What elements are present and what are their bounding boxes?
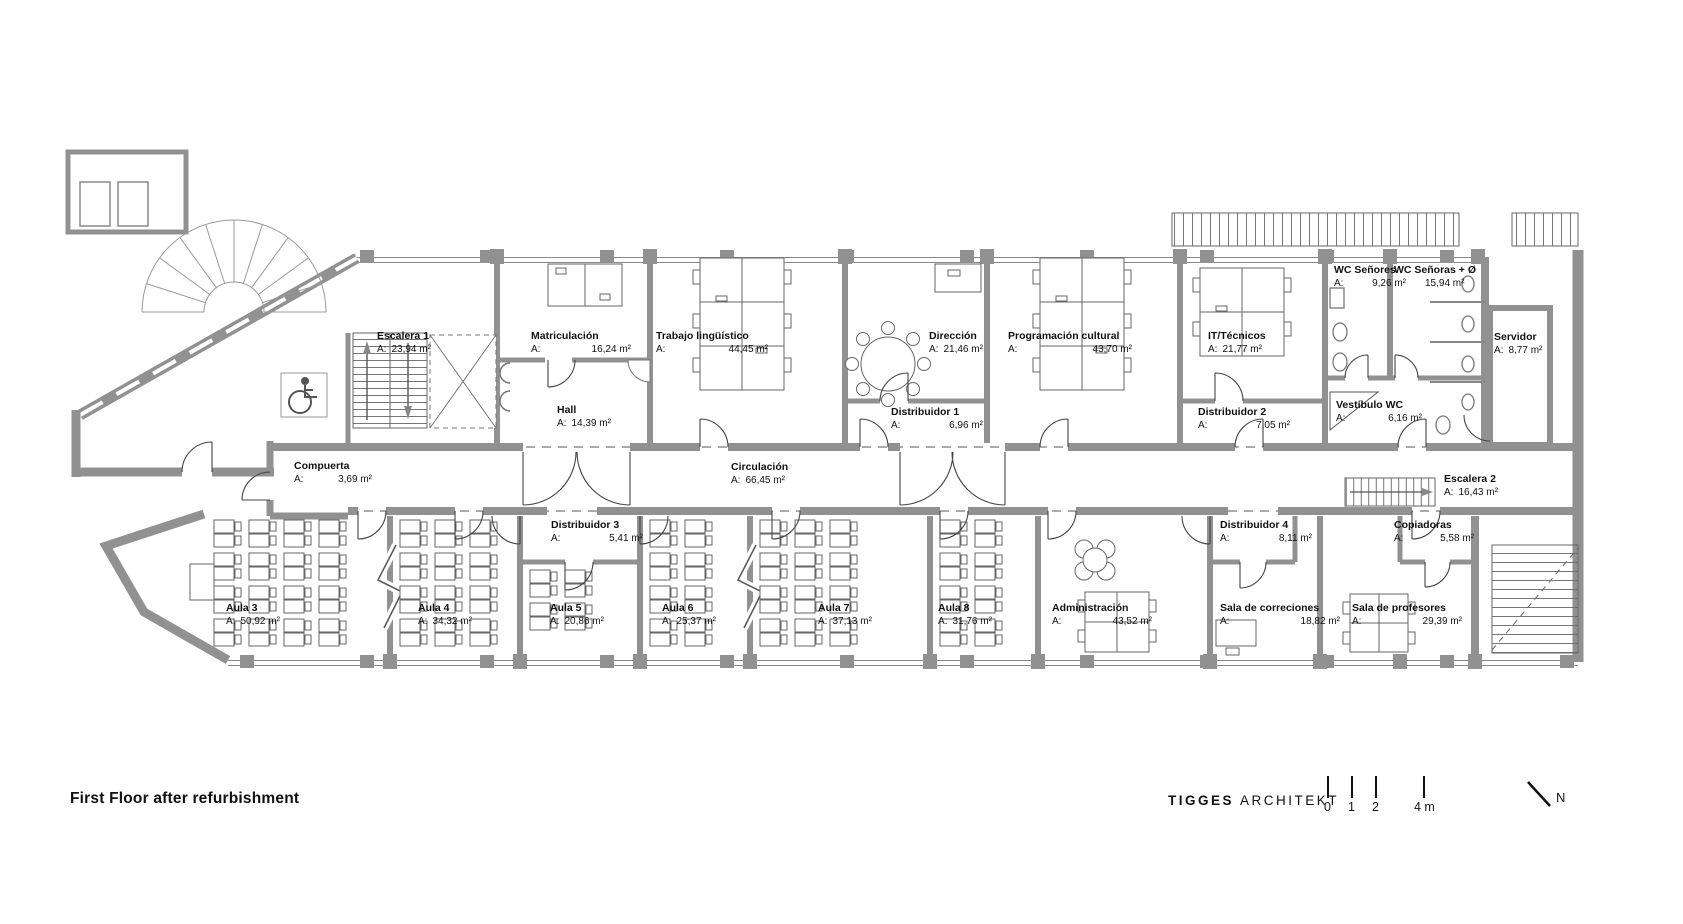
room-label-wc-senoras: WC Señoras + Ø15,94 m² [1394,265,1476,289]
escalera-2-stair [1345,478,1435,506]
scale-label-0: 0 [1324,800,1331,814]
room-label-distribuidor-1: Distribuidor 1A:6,96 m² [891,407,983,431]
dock-hatched-strip [1172,213,1578,246]
room-label-it-tecnicos: IT/TécnicosA:21,77 m² [1208,331,1266,355]
floor-plan-page: Escalera 1A:23,94 m² MatriculaciónA:16,2… [0,0,1683,924]
room-label-distribuidor-2: Distribuidor 2A:7,05 m² [1198,407,1290,431]
room-label-copiadoras: CopiadorasA:5,58 m² [1394,520,1474,544]
room-label-aula-6: Aula 6A:25,37 m² [662,603,716,627]
room-label-administracion: AdministraciónA:43,52 m² [1052,603,1152,627]
room-label-sala-de-profesores: Sala de profesoresA:29,39 m² [1352,603,1462,627]
room-label-servidor: ServidorA:8,77 m² [1494,332,1542,356]
room-label-compuerta: CompuertaA:3,69 m² [294,461,372,485]
room-label-aula-5: Aula 5A:20,86 m² [550,603,604,627]
room-label-programacion-cultural: Programación culturalA:43,70 m² [1008,331,1132,355]
room-label-escalera-2: Escalera 2A:16,43 m² [1444,474,1498,498]
brand-primary: TIGGES [1168,793,1234,808]
scale-bar [1328,776,1424,798]
architect-brand: TIGGESARCHITEKT [1168,793,1339,808]
room-label-hall: HallA:14,39 m² [557,405,611,429]
room-label-escalera-1: Escalera 1A:23,94 m² [377,331,431,355]
room-label-circulacion: CirculaciónA:66,45 m² [731,462,788,486]
north-arrow [1528,782,1550,806]
room-label-matriculacion: MatriculaciónA:16,24 m² [531,331,631,355]
floor-plan-drawing [0,0,1683,924]
stair-void [430,335,496,428]
exterior-stair [1492,545,1578,653]
drawing-title: First Floor after refurbishment [70,790,299,808]
room-label-aula-4: Aula 4A:34,32 m² [418,603,472,627]
scale-label-1: 1 [1348,800,1355,814]
annex-room [68,152,186,232]
room-label-direccion: DirecciónA:21,46 m² [929,331,983,355]
room-label-aula-8: Aula 8A:31,76 m² [938,603,992,627]
room-label-aula-7: Aula 7A:37,13 m² [818,603,872,627]
room-label-distribuidor-3: Distribuidor 3A:5,41 m² [551,520,643,544]
room-label-distribuidor-4: Distribuidor 4A:8,11 m² [1220,520,1312,544]
north-label: N [1556,790,1565,805]
room-label-sala-de-correciones: Sala de correcionesA:18,82 m² [1220,603,1340,627]
room-label-trabajo-linguistico: Trabajo lingüísticoA:44,45 m² [656,331,768,355]
scale-label-2: 2 [1372,800,1379,814]
wheelchair-icon [281,373,327,417]
scale-label-4m: 4 m [1414,800,1435,814]
room-label-aula-3: Aula 3A:50,92 m² [226,603,280,627]
room-label-vestibulo-wc: Vestíbulo WCA:6,16 m² [1336,400,1422,424]
